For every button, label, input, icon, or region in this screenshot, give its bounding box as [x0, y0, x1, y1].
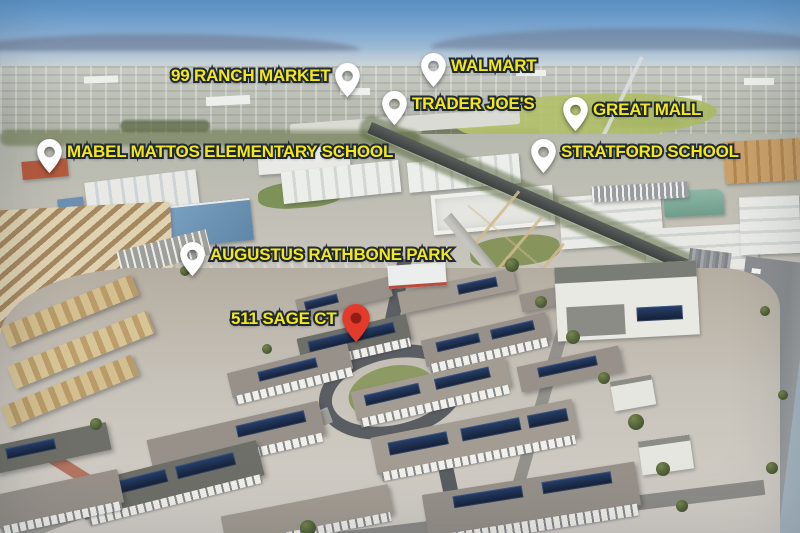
- warehouse-roof: [744, 78, 774, 85]
- map-pin-icon: [381, 90, 408, 126]
- solar-panels: [434, 367, 491, 390]
- solar-panels: [541, 471, 612, 494]
- warehouse-roof: [84, 75, 118, 83]
- map-pin-icon: [420, 52, 447, 88]
- tree: [766, 462, 778, 474]
- tree: [598, 372, 610, 384]
- tree: [535, 296, 547, 308]
- solar-panels: [457, 277, 498, 295]
- map-pin-icon: [562, 96, 589, 132]
- map-pin-icon: [334, 62, 361, 98]
- poi-marker-walmart: WALMART: [420, 52, 536, 88]
- poi-label: WALMART: [451, 56, 536, 76]
- solar-panels: [452, 485, 523, 508]
- poi-label: 511 SAGE CT: [231, 309, 337, 329]
- map-pin-icon: [179, 241, 206, 277]
- apartment-building: [554, 260, 700, 341]
- tree: [300, 520, 316, 533]
- tree: [505, 258, 519, 272]
- poi-marker-mabel-mattos-elementary: MABEL MATTOS ELEMENTARY SCHOOL: [36, 138, 393, 174]
- tree: [676, 500, 688, 512]
- tree: [656, 462, 670, 476]
- poi-marker-511-sage-ct: 511 SAGE CT: [231, 305, 371, 343]
- solar-panels: [490, 320, 535, 340]
- apartment-block: [739, 195, 800, 255]
- solar-panels: [387, 431, 448, 455]
- solar-panels: [5, 438, 56, 459]
- poi-label: GREAT MALL: [593, 100, 701, 120]
- poi-label: MABEL MATTOS ELEMENTARY SCHOOL: [67, 142, 393, 162]
- aerial-photo: 99 RANCH MARKET WALMART TRADER JOE'S GRE…: [0, 0, 800, 533]
- tree: [90, 418, 102, 430]
- tree: [628, 414, 644, 430]
- solar-panels: [636, 305, 683, 321]
- poi-label: AUGUSTUS RATHBONE PARK: [210, 245, 452, 265]
- tree: [760, 306, 770, 316]
- tree: [262, 344, 272, 354]
- poi-marker-augustus-rathbone-park: AUGUSTUS RATHBONE PARK: [179, 241, 452, 277]
- solar-panels: [460, 417, 521, 441]
- poi-marker-99-ranch-market: 99 RANCH MARKET: [171, 62, 361, 98]
- solar-panels: [364, 383, 421, 406]
- map-pin-icon: [530, 138, 557, 174]
- poi-marker-stratford-school: STRATFORD SCHOOL: [530, 138, 739, 174]
- poi-label: STRATFORD SCHOOL: [561, 142, 739, 162]
- poi-marker-trader-joes: TRADER JOE'S: [381, 90, 535, 126]
- map-pin-icon: [36, 138, 63, 174]
- solar-panels: [435, 333, 480, 353]
- poi-marker-great-mall: GREAT MALL: [562, 96, 701, 132]
- solar-panels: [527, 408, 569, 428]
- tree: [778, 390, 788, 400]
- poi-label: TRADER JOE'S: [412, 94, 535, 114]
- map-pin-icon: [341, 303, 371, 343]
- tree: [566, 330, 580, 344]
- poi-label: 99 RANCH MARKET: [171, 66, 330, 86]
